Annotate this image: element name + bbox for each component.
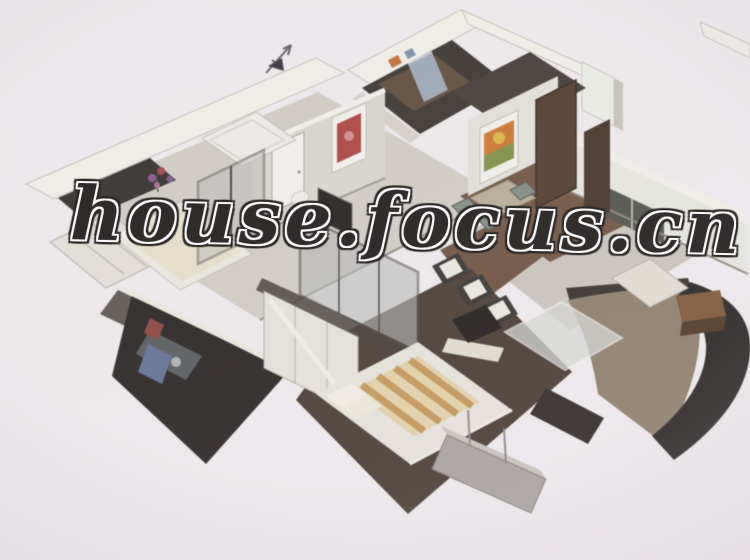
dining-wall-pillar-side [614, 78, 623, 131]
entry-door-handle [298, 171, 301, 174]
screenshot-root: house.focus.cn [0, 0, 750, 560]
watermark-text: house.focus.cn [69, 177, 710, 264]
left-balcony-white-object [171, 357, 181, 367]
apartment-rendering [0, 0, 750, 560]
colorful-painting-yellow [493, 132, 505, 144]
red-art-pink-detail [344, 131, 354, 141]
